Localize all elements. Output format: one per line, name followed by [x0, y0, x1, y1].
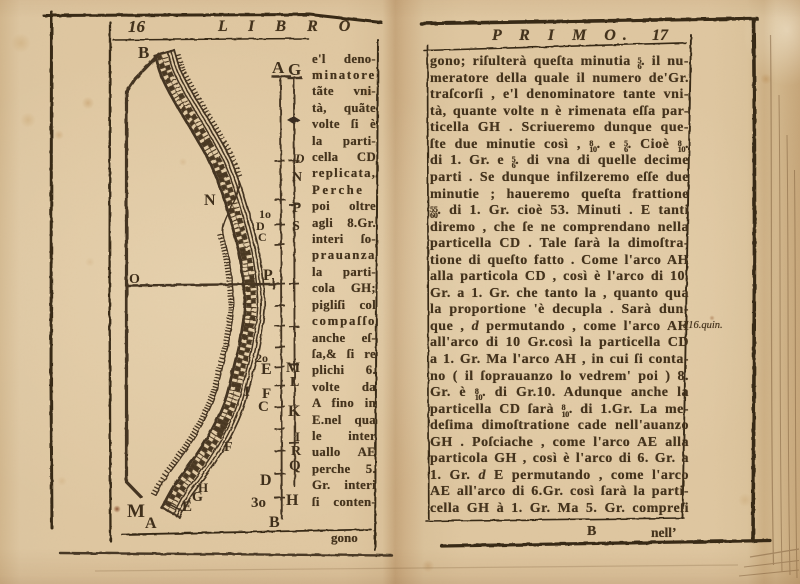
svg-text:A: A	[145, 515, 157, 532]
svg-text:N: N	[292, 170, 302, 185]
svg-text:H: H	[198, 480, 208, 495]
svg-text:Q: Q	[289, 458, 301, 474]
svg-text:H: H	[286, 492, 299, 509]
svg-text:D: D	[260, 472, 272, 489]
svg-text:S: S	[292, 219, 300, 234]
svg-text:M: M	[127, 501, 145, 522]
svg-text:L: L	[290, 375, 299, 390]
svg-text:A: A	[272, 58, 285, 77]
svg-text:E: E	[182, 499, 192, 515]
svg-text:P: P	[263, 267, 273, 284]
svg-text:P: P	[292, 200, 301, 216]
svg-text:B: B	[138, 43, 149, 62]
svg-text:M: M	[286, 360, 300, 376]
svg-text:3o: 3o	[251, 495, 266, 511]
svg-text:I: I	[244, 384, 250, 400]
svg-text:N: N	[204, 192, 216, 209]
svg-text:F: F	[224, 440, 233, 455]
svg-text:K: K	[288, 403, 301, 420]
svg-text:B: B	[269, 514, 280, 531]
svg-text:E: E	[261, 361, 272, 378]
svg-text:C: C	[258, 230, 267, 244]
svg-text:O: O	[129, 272, 140, 287]
svg-text:C: C	[258, 399, 269, 415]
svg-text:I: I	[295, 429, 300, 444]
svg-text:D: D	[294, 151, 305, 166]
svg-text:G: G	[288, 60, 301, 79]
svg-text:R: R	[291, 444, 302, 459]
